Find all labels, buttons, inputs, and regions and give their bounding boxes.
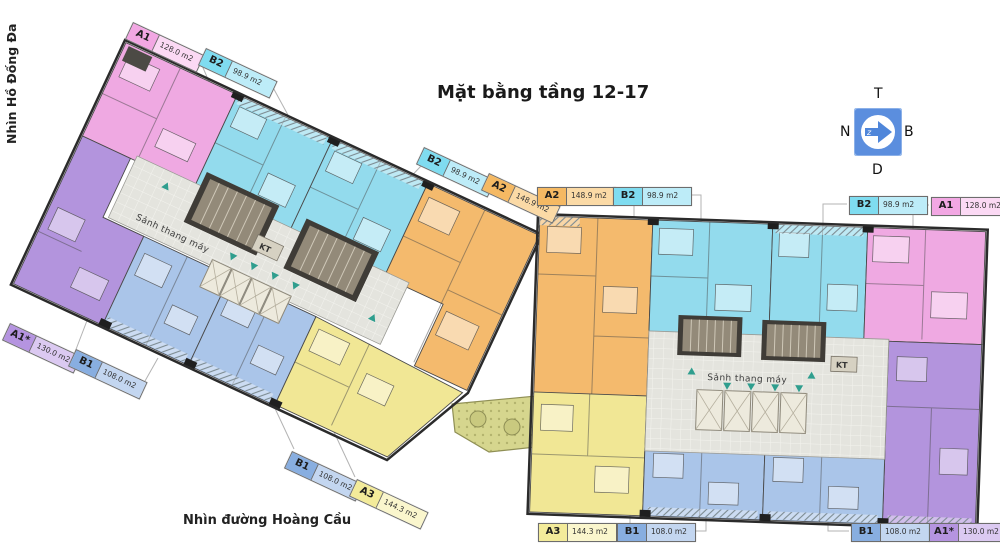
unit-label-A1-east[interactable]: A1128.0 m2 bbox=[931, 197, 1000, 216]
compass-letter-left: N bbox=[840, 124, 850, 140]
unit-label-B2-east-1[interactable]: B298.9 m2 bbox=[613, 187, 692, 206]
kt-shaft-east: KT bbox=[831, 356, 858, 372]
unit-label-B1-east-2[interactable]: B1108.0 m2 bbox=[851, 523, 930, 542]
street-label-south: Nhìn đường Hoàng Cầu bbox=[183, 513, 351, 528]
east-wing: KT Sảnh thang máy bbox=[528, 214, 988, 530]
street-label-west: Nhìn Hồ Đống Đa bbox=[4, 6, 20, 144]
unit-label-B2-east-2[interactable]: B298.9 m2 bbox=[849, 196, 928, 215]
svg-text:z: z bbox=[866, 128, 872, 137]
page-title: Mặt bằng tầng 12-17 bbox=[437, 82, 649, 103]
unit-label-A3-east[interactable]: A3144.3 m2 bbox=[538, 523, 617, 542]
stairwell-east-1 bbox=[677, 315, 742, 357]
compass-letter-right: B bbox=[904, 124, 914, 140]
compass-letter-top: T bbox=[874, 86, 883, 102]
floorplan-page: KT Sảnh thang máy bbox=[0, 0, 1000, 556]
compass: T B D N z bbox=[834, 86, 926, 186]
unit-label-B1-east-1[interactable]: B1108.0 m2 bbox=[617, 523, 696, 542]
patio-table bbox=[470, 411, 486, 427]
unit-label-A1s-east[interactable]: A1*130.0 m2 bbox=[929, 523, 1000, 542]
svg-text:KT: KT bbox=[836, 360, 849, 369]
connecting-walkway bbox=[452, 396, 536, 452]
stairwell-east-2 bbox=[761, 320, 826, 362]
patio-table bbox=[504, 419, 520, 435]
compass-letter-bottom: D bbox=[872, 162, 883, 178]
unit-label-A2-east[interactable]: A2148.9 m2 bbox=[537, 187, 616, 206]
compass-arrow-icon: z bbox=[854, 108, 902, 156]
